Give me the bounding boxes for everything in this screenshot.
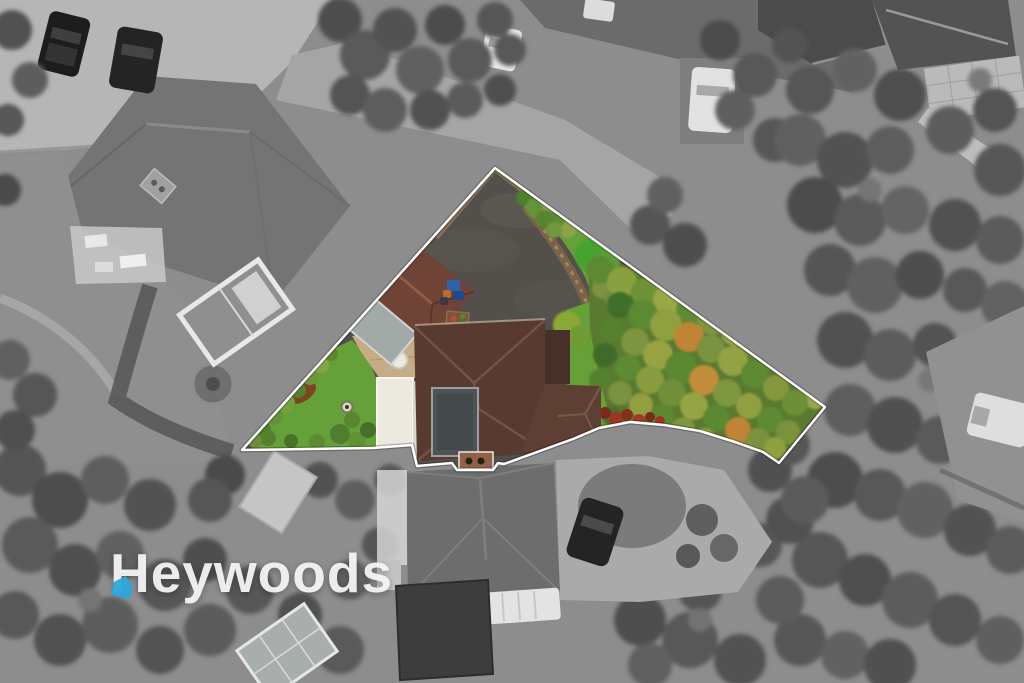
flat-garage-roof (396, 580, 493, 680)
white-van (485, 587, 561, 624)
drone-photo: Heywoods (0, 0, 1024, 683)
aerial-photo-canvas (0, 0, 1024, 683)
house-chimney (459, 452, 493, 469)
